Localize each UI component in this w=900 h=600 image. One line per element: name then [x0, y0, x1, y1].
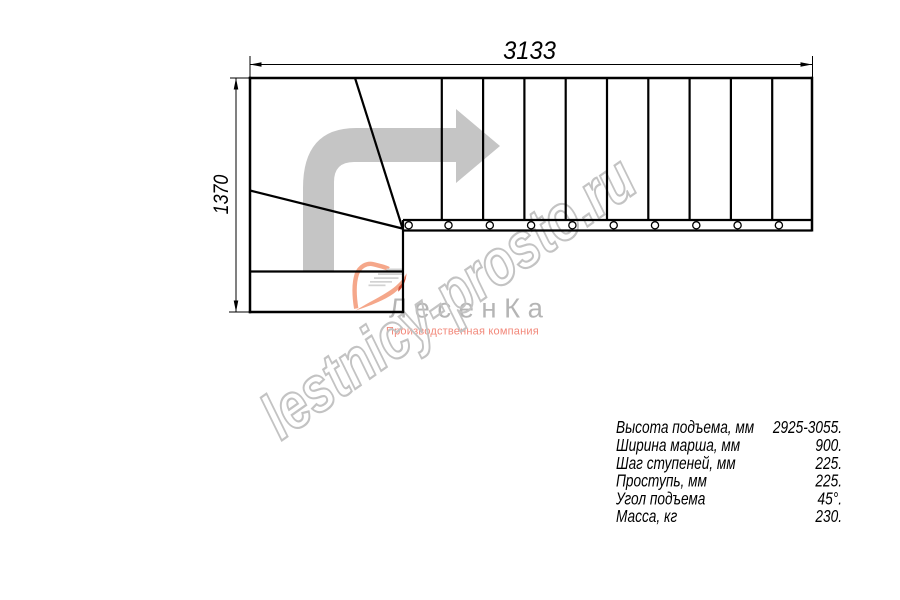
- svg-text:225.: 225.: [815, 454, 842, 473]
- svg-text:Высота подъема, мм: Высота подъема, мм: [616, 419, 754, 438]
- svg-text:3133: 3133: [503, 37, 556, 65]
- svg-text:45°.: 45°.: [818, 490, 842, 509]
- svg-text:Шаг ступеней, мм: Шаг ступеней, мм: [616, 454, 736, 473]
- svg-text:Проступь, мм: Проступь, мм: [616, 472, 707, 491]
- svg-text:Масса, кг: Масса, кг: [616, 508, 677, 527]
- svg-text:230.: 230.: [815, 508, 842, 527]
- svg-text:2925-3055.: 2925-3055.: [772, 419, 842, 438]
- svg-text:Угол подъема: Угол подъема: [615, 490, 705, 509]
- svg-text:1370: 1370: [210, 175, 234, 215]
- svg-text:225.: 225.: [815, 472, 842, 491]
- svg-text:900.: 900.: [815, 436, 842, 455]
- svg-text:Ширина марша, мм: Ширина марша, мм: [616, 436, 740, 455]
